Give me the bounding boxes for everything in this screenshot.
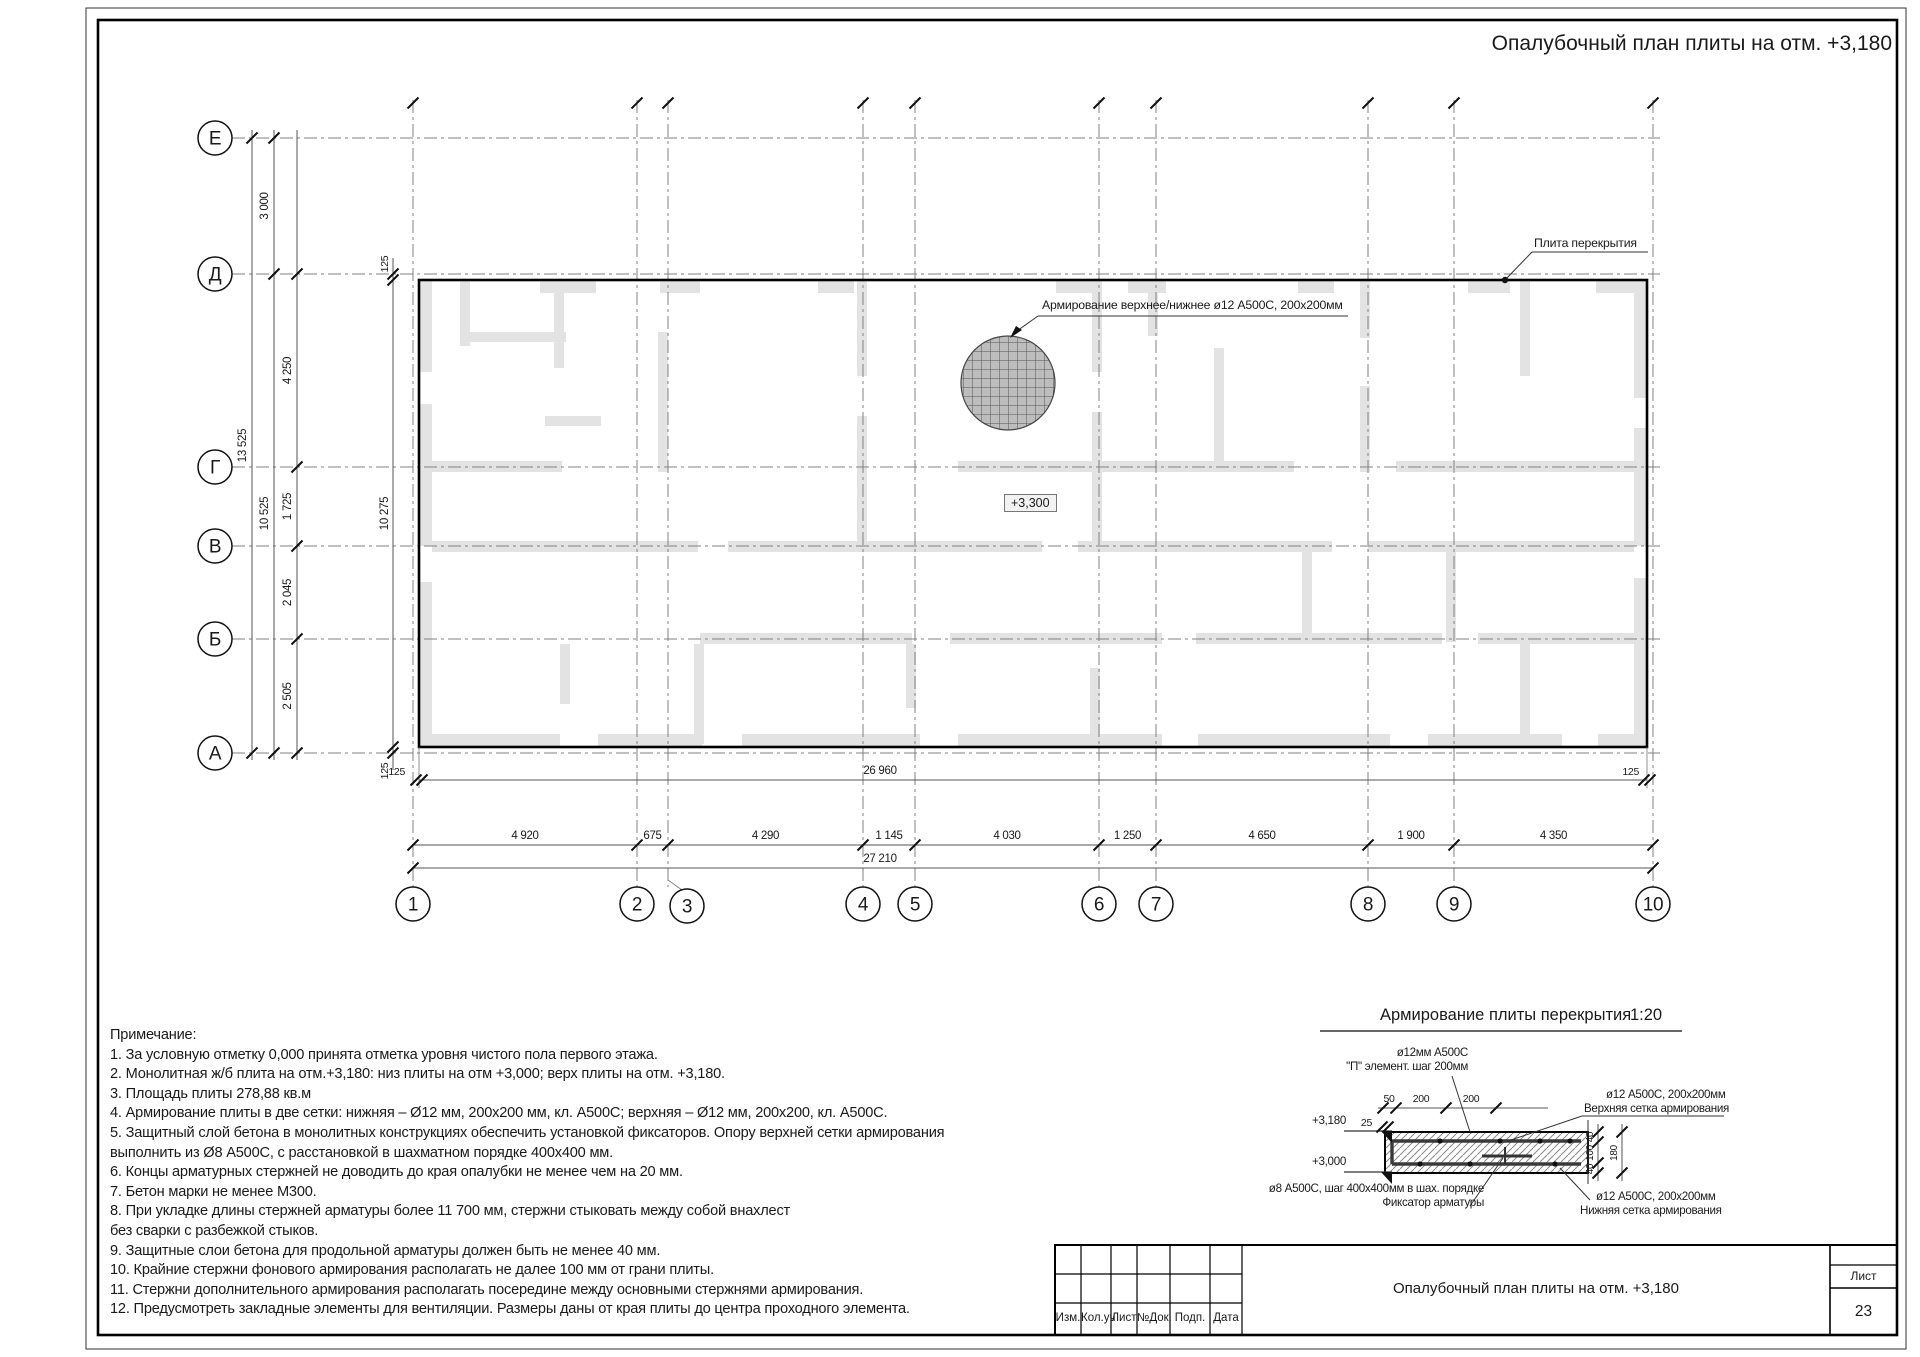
dim-label: 125 — [1622, 766, 1639, 778]
titleblock-doc-title: Опалубочный план плиты на отм. +3,180 — [1242, 1280, 1830, 1297]
wall-segment — [419, 582, 432, 747]
wall-segment — [857, 416, 867, 552]
note-line: 11. Стержни дополнительного армирования … — [110, 1281, 944, 1301]
drawing-sheet: 13 5253 00010 5254 2501 7252 0452 50510 … — [0, 0, 1920, 1357]
wall-segment — [1198, 734, 1390, 747]
dim-label: 40 — [1585, 1163, 1596, 1174]
dim-label: 1 900 — [1397, 830, 1424, 842]
titleblock-col-data: Дата — [1210, 1312, 1242, 1324]
vent-opening-circle — [961, 336, 1055, 430]
bubble-leader — [668, 880, 682, 890]
wall-segment — [1298, 280, 1334, 293]
wall-segment — [742, 734, 920, 747]
detail-fixator-label1: ø8 А500С, шаг 400х400мм в шах. порядке — [1184, 1182, 1484, 1195]
wall-segment — [1598, 734, 1634, 747]
dim-label: 125 — [379, 255, 391, 272]
wall-segment — [818, 280, 854, 293]
detail-topmesh-label2: Верхняя сетка армирования — [1584, 1102, 1729, 1115]
note-line: 4. Армирование плиты в две сетки: нижняя… — [110, 1104, 944, 1124]
dim-label: 3 000 — [259, 192, 271, 219]
dim-label: 50 — [1383, 1093, 1395, 1105]
detail-ulabel-line1: ø12мм А500С — [1268, 1046, 1468, 1059]
note-line: 2. Монолитная ж/б плита на отм.+3,180: н… — [110, 1065, 944, 1085]
dim-label: 10 525 — [259, 497, 271, 530]
dim-label: 27 210 — [863, 853, 896, 865]
wall-segment — [1634, 280, 1647, 398]
wall-segment — [545, 416, 601, 426]
wall-segment — [1302, 552, 1312, 644]
titleblock-col-ndok: №Док. — [1137, 1312, 1170, 1324]
wall-segment — [432, 734, 560, 747]
wall-segment — [1214, 348, 1224, 472]
dim-label: 4 650 — [1248, 830, 1275, 842]
titleblock-col-podp: Подп. — [1170, 1312, 1210, 1324]
dim-label: 4 350 — [1540, 830, 1567, 842]
dim-label: 26 960 — [863, 765, 896, 777]
wall-segment — [660, 280, 700, 293]
detail-fixator-label2: Фиксатор арматуры — [1184, 1196, 1484, 1209]
detail-elev-bottom: +3,000 — [1312, 1155, 1346, 1168]
slab-callout-label: Плита перекрытия — [1534, 236, 1637, 250]
rebar-dot — [1567, 1138, 1572, 1143]
dim-label: 25 — [1361, 1117, 1373, 1129]
axis-bubble-label: А — [209, 744, 222, 765]
note-line: 3. Площадь плиты 278,88 кв.м — [110, 1085, 944, 1105]
dim-label: 1 725 — [282, 493, 294, 520]
wall-segment — [1428, 734, 1562, 747]
note-line: 6. Концы арматурных стержней не доводить… — [110, 1163, 944, 1183]
note-line: выполнить из Ø8 А500С, с расстановкой в … — [110, 1144, 944, 1164]
wall-segment — [1634, 428, 1647, 546]
dim-label: 675 — [643, 830, 661, 842]
wall-segment — [1520, 644, 1530, 744]
sheet-title: Опалубочный план плиты на отм. +3,180 — [1492, 32, 1892, 56]
titleblock-sheet-label: Лист — [1830, 1269, 1897, 1283]
axis-bubble-label: В — [209, 537, 221, 558]
wall-segment — [540, 280, 596, 293]
detail-topmesh-label1: ø12 А500С, 200х200мм — [1606, 1088, 1726, 1101]
axis-bubble-label: 10 — [1643, 895, 1664, 916]
dim-label: 40 — [1585, 1131, 1596, 1142]
callout-dot — [1502, 277, 1508, 283]
dim-label: 4 290 — [752, 830, 779, 842]
axis-bubble-label: 5 — [910, 895, 920, 916]
wall-segment — [598, 734, 702, 747]
rebar-dot — [1417, 1161, 1422, 1166]
rebar-dot — [1552, 1161, 1557, 1166]
rebar-dot — [1497, 1138, 1502, 1143]
dim-label: 200 — [1463, 1093, 1480, 1105]
dim-label: 2 045 — [282, 579, 294, 606]
titleblock-col-koluch: Кол.уч — [1081, 1312, 1111, 1324]
dim-total-left: 13 525 — [237, 429, 249, 462]
axis-bubble-label: 4 — [858, 895, 869, 916]
wall-segment — [419, 280, 432, 372]
note-line: 5. Защитный слой бетона в монолитных кон… — [110, 1124, 944, 1144]
dim-label: 1 145 — [875, 830, 902, 842]
detail-scale: 1:20 — [1630, 1006, 1662, 1025]
wall-segment — [958, 734, 1162, 747]
wall-segment — [658, 332, 668, 472]
notes-heading: Примечание: — [110, 1026, 944, 1046]
axis-bubble-label: 6 — [1094, 895, 1104, 916]
titleblock-col-izm: Изм. — [1055, 1312, 1081, 1324]
dim-label: 180 — [1609, 1144, 1620, 1161]
wall-segment — [560, 644, 570, 704]
wall-segment — [857, 280, 867, 376]
axis-bubble-label: 8 — [1363, 895, 1373, 916]
notes-block: Примечание: 1. За условную отметку 0,000… — [110, 1026, 944, 1320]
wall-segment — [460, 280, 470, 346]
detail-ulabel-line2: "П" элемент. шаг 200мм — [1268, 1060, 1468, 1073]
wall-segment — [1128, 280, 1166, 293]
wall-segment — [1092, 280, 1102, 372]
wall-segment — [1596, 280, 1634, 293]
detail-botmesh-label1: ø12 А500С, 200х200мм — [1596, 1190, 1716, 1203]
note-line: 9. Защитные слои бетона для продольной а… — [110, 1242, 944, 1262]
titleblock-sheet-number: 23 — [1830, 1303, 1897, 1321]
axis-bubble-label: 9 — [1449, 895, 1459, 916]
wall-segment — [1634, 578, 1647, 747]
detail-botmesh-label2: Нижняя сетка армирования — [1580, 1204, 1722, 1217]
axis-bubble-label: Д — [209, 265, 222, 286]
rebar-dot — [1467, 1161, 1472, 1166]
axis-bubble-label: Е — [209, 129, 221, 150]
dim-label: 4 030 — [993, 830, 1020, 842]
axis-bubble-label: Б — [209, 630, 221, 651]
wall-segment — [419, 404, 432, 546]
dim-label: 125 — [388, 766, 405, 778]
axis-bubble-label: 2 — [632, 895, 642, 916]
note-line: 10. Крайние стержни фонового армирования… — [110, 1261, 944, 1281]
section-concrete — [1385, 1132, 1588, 1173]
dim-label: 10 275 — [379, 497, 391, 530]
dim-label: 200 — [1413, 1093, 1430, 1105]
rebar-dot — [1437, 1138, 1442, 1143]
detail-title: Армирование плиты перекрытия — [1380, 1006, 1631, 1025]
slab-elevation-badge: +3,300 — [1004, 494, 1057, 512]
rebar-dot — [1537, 1138, 1542, 1143]
axis-bubble-label: Г — [210, 458, 220, 479]
titleblock-col-list: Лист — [1111, 1312, 1137, 1324]
note-line: 12. Предусмотреть закладные элементы для… — [110, 1300, 944, 1320]
wall-segment — [554, 280, 564, 368]
note-line: 8. При укладке длины стержней арматуры б… — [110, 1202, 944, 1222]
note-line: 7. Бетон марки не менее М300. — [110, 1183, 944, 1203]
dim-label: 2 505 — [282, 682, 294, 709]
wall-segment — [1520, 280, 1530, 376]
wall-segment — [470, 332, 566, 342]
dim-label: 4 920 — [511, 830, 538, 842]
note-line: 1. За условную отметку 0,000 принята отм… — [110, 1046, 944, 1066]
wall-segment — [694, 644, 704, 744]
reinforcement-callout-label: Армирование верхнее/нижнее ø12 А500С, 20… — [1042, 298, 1343, 312]
dim-label: 1 250 — [1114, 830, 1141, 842]
callout-leader — [1505, 252, 1532, 280]
detail-elev-top: +3,180 — [1312, 1114, 1346, 1127]
note-line: без сварки с разбежкой стыков. — [110, 1222, 944, 1242]
dim-label: 4 250 — [282, 357, 294, 384]
axis-bubble-label: 3 — [682, 897, 692, 918]
axis-bubble-label: 7 — [1151, 895, 1161, 916]
axis-bubble-label: 1 — [408, 895, 418, 916]
wall-segment — [1092, 412, 1102, 552]
dim-label: 100 — [1585, 1144, 1596, 1161]
